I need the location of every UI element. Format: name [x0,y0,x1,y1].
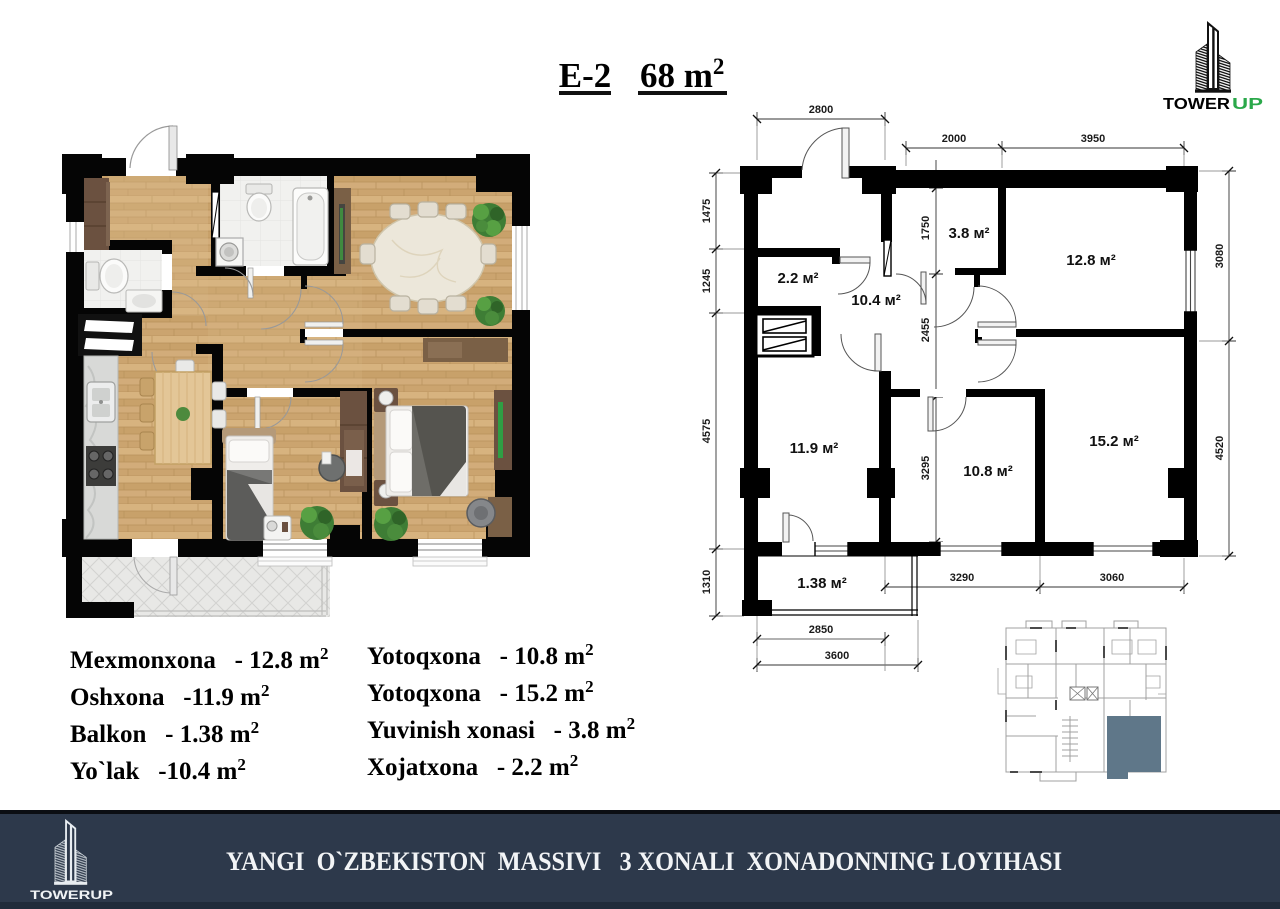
svg-text:2800: 2800 [809,104,833,116]
svg-text:Yuvinish xonasi - 3.8 m2: Yuvinish xonasi - 3.8 m2 [367,714,635,744]
svg-text:1245: 1245 [701,269,713,293]
svg-text:YANGI O`ZBEKISTON MASSIVI: YANGI O`ZBEKISTON MASSIVI 3 XONALI XONAD… [226,847,1062,876]
svg-text:1750: 1750 [920,216,932,240]
svg-text:TOWERUP: TOWERUP [30,888,113,902]
svg-text:Balkon - 1.38 m2: Balkon - 1.38 m2 [70,718,259,748]
svg-text:Oshxona -11.9 m2: Oshxona -11.9 m2 [70,681,270,711]
svg-text:2.2 м²: 2.2 м² [777,270,818,287]
svg-text:3080: 3080 [1214,244,1226,268]
svg-text:3950: 3950 [1081,133,1105,145]
svg-text:TOWER: TOWER [1163,96,1230,113]
svg-text:11.9 м²: 11.9 м² [790,440,839,457]
svg-text:2850: 2850 [809,624,833,636]
svg-text:4520: 4520 [1214,436,1226,460]
svg-text:UP: UP [1232,96,1263,113]
svg-text:Yotoqxona - 10.8 m2: Yotoqxona - 10.8 m2 [367,640,594,670]
svg-text:3600: 3600 [825,650,849,662]
svg-text:2000: 2000 [942,133,966,145]
svg-text:E-2: E-2 [559,56,612,95]
svg-text:3060: 3060 [1100,572,1124,584]
svg-text:15.2 м²: 15.2 м² [1089,433,1138,450]
svg-text:1310: 1310 [701,570,713,594]
svg-text:3.8 м²: 3.8 м² [948,225,989,242]
svg-text:Yo`lak -10.4 m2: Yo`lak -10.4 m2 [70,755,246,785]
svg-text:10.8 м²: 10.8 м² [963,463,1012,480]
svg-text:1475: 1475 [701,199,713,223]
svg-text:1.38 м²: 1.38 м² [797,575,846,592]
svg-text:4575: 4575 [701,419,713,443]
svg-text:12.8 м²: 12.8 м² [1066,252,1115,269]
svg-text:10.4 м²: 10.4 м² [851,292,900,309]
svg-text:3295: 3295 [920,456,932,480]
svg-text:68 m2: 68 m2 [640,54,724,95]
svg-text:2455: 2455 [920,318,932,342]
svg-text:Xojatxona - 2.2 m2: Xojatxona - 2.2 m2 [367,751,578,781]
svg-text:3290: 3290 [950,572,974,584]
svg-text:Mexmonxona - 12.8 m2: Mexmonxona - 12.8 m2 [70,644,328,674]
svg-text:Yotoqxona - 15.2 m2: Yotoqxona - 15.2 m2 [367,677,594,707]
